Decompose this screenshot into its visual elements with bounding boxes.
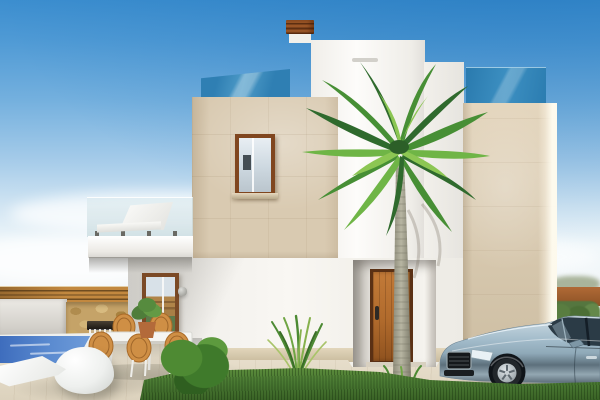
round-shrub [160,332,232,394]
palm-tree [0,0,600,400]
palm-fronds [302,62,490,236]
palm-trunk-rings [393,158,411,378]
villa-render-scene [0,0,600,400]
